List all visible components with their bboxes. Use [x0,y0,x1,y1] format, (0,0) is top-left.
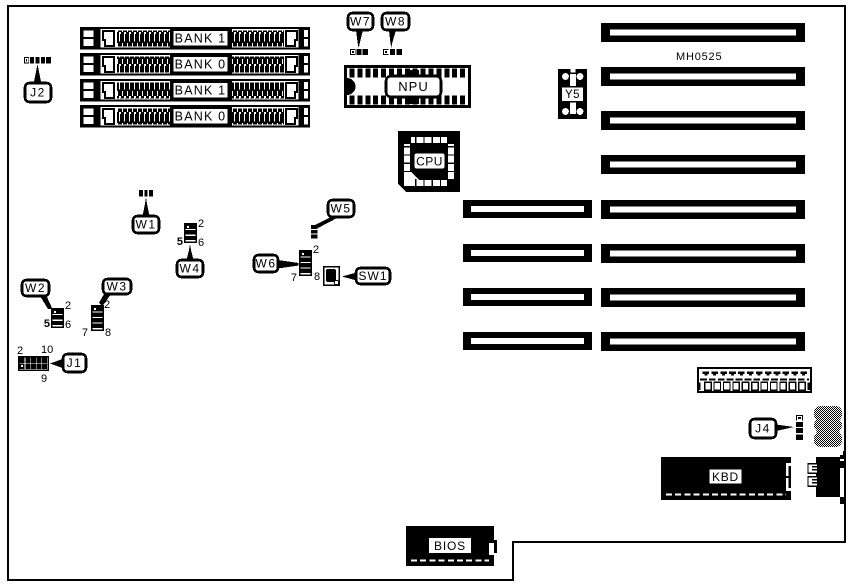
svg-text:BANK 0: BANK 0 [175,58,227,72]
svg-text:W4: W4 [180,262,201,276]
svg-text:W5: W5 [331,202,352,216]
svg-text:J4: J4 [755,422,771,436]
svg-text:6: 6 [65,319,71,331]
svg-text:5: 5 [177,236,183,248]
svg-text:W2: W2 [25,281,46,295]
svg-text:W3: W3 [107,280,128,294]
svg-text:2: 2 [65,300,71,312]
svg-text:CPU: CPU [416,155,443,169]
svg-text:2: 2 [17,345,23,357]
svg-text:9: 9 [41,373,47,385]
svg-text:BANK 1: BANK 1 [175,32,227,46]
svg-text:KBD: KBD [712,470,739,484]
svg-text:W7: W7 [350,15,371,29]
svg-text:7: 7 [82,327,88,339]
svg-text:BANK 1: BANK 1 [175,84,227,98]
svg-text:NPU: NPU [398,79,428,94]
svg-text:2: 2 [104,299,110,311]
svg-text:Y5: Y5 [565,89,580,101]
svg-text:SW1: SW1 [358,269,387,283]
svg-text:W8: W8 [385,15,406,29]
svg-text:BANK 0: BANK 0 [175,110,227,124]
svg-text:10: 10 [41,344,53,356]
svg-text:W1: W1 [136,218,157,232]
svg-text:BIOS: BIOS [434,539,466,553]
svg-text:7: 7 [291,272,297,284]
svg-text:W6: W6 [256,257,277,271]
svg-text:J1: J1 [67,356,83,370]
svg-text:J2: J2 [30,86,46,100]
svg-text:8: 8 [314,271,320,283]
svg-text:MH0525: MH0525 [676,51,722,63]
svg-text:8: 8 [105,327,111,339]
svg-text:5: 5 [44,318,50,330]
svg-text:2: 2 [313,244,319,256]
svg-text:6: 6 [198,237,204,249]
svg-text:2: 2 [198,218,204,230]
